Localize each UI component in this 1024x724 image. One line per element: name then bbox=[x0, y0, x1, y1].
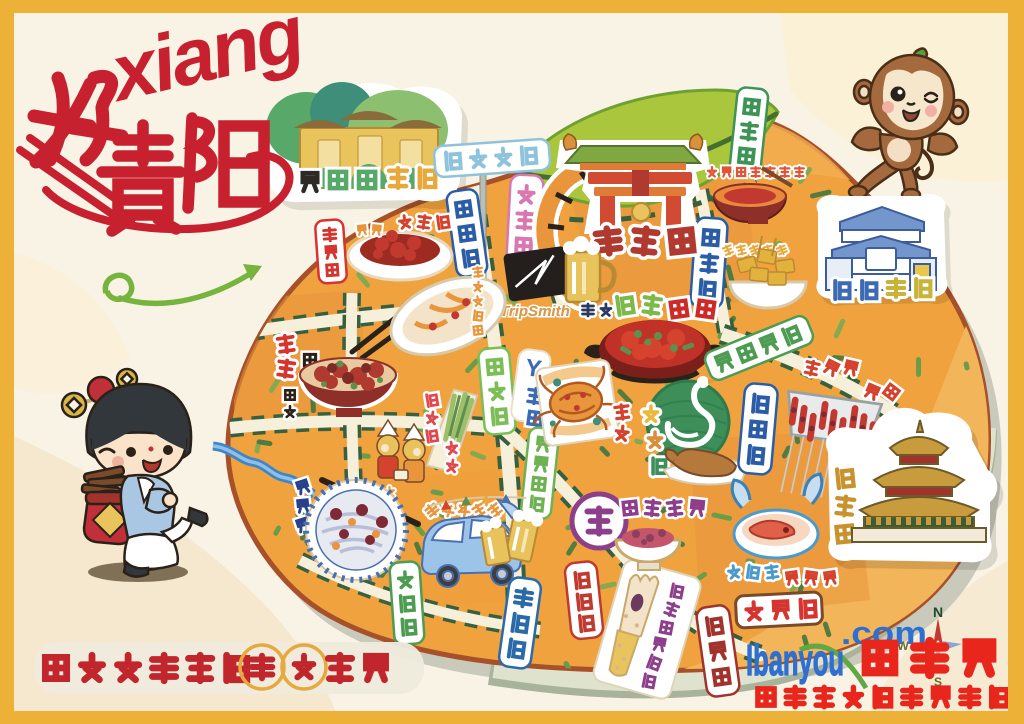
svg-text:Ibanyou: Ibanyou bbox=[746, 636, 844, 685]
svg-text:TripSmith: TripSmith bbox=[500, 303, 570, 320]
svg-text:N: N bbox=[933, 604, 943, 620]
